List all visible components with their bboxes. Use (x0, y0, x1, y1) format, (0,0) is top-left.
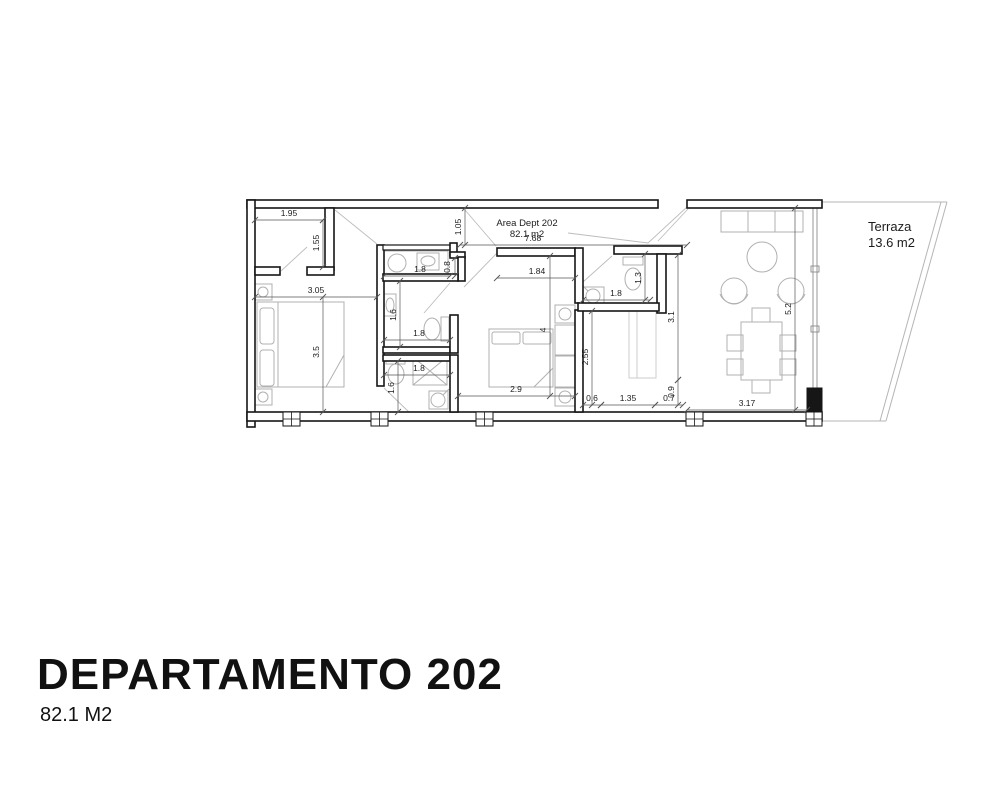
dim-bedroom2-top: 1.84 (529, 266, 546, 276)
left-wall (247, 200, 255, 427)
bath2-sink (431, 393, 445, 407)
living-furniture (720, 211, 805, 393)
dim-bath3-depth: 1.3 (633, 272, 643, 284)
bedroom1-furniture (255, 284, 344, 405)
dim-bedroom1-width: 3.05 (308, 285, 325, 295)
page-title: DEPARTAMENTO 202 (37, 650, 503, 700)
dim-hall-b: 1.35 (620, 393, 637, 403)
bath3-sink (586, 289, 600, 303)
dim-bedroom2-depth: 4 (538, 327, 548, 332)
page-subtitle: 82.1 M2 (40, 704, 112, 727)
bath1-toilet (424, 318, 440, 340)
dim-kitchen-depth: 2.55 (580, 348, 590, 365)
dim-living-width: 3.17 (739, 398, 756, 408)
kitchen-counter (629, 311, 656, 378)
terrace-annotation: Terraza 13.6 m2 (868, 219, 915, 250)
area-annotation: Area Dept 202 82.1 m2 (496, 218, 557, 240)
dim-counter-depth: 0.9 (666, 386, 676, 398)
dim-hall-a: 0.6 (586, 393, 598, 403)
dim-hall-depth: 3.1 (666, 311, 676, 323)
dim-bath2-depth: 1.6 (386, 382, 396, 394)
bedroom2-top-wall (497, 248, 575, 256)
top-wall-right (687, 200, 822, 208)
terrace-label: Terraza (868, 219, 912, 234)
sofa (721, 211, 803, 232)
sliding-door (811, 208, 819, 388)
top-wall-left (247, 200, 658, 208)
bath2-toilet (388, 364, 404, 384)
dim-closet-width: 1.95 (281, 208, 298, 218)
dining-table (741, 322, 782, 380)
dim-bedroom1-depth: 3.5 (311, 346, 321, 358)
round-table (747, 242, 777, 272)
dim-bedroom2-bottom: 2.9 (510, 384, 522, 394)
living-column (807, 388, 822, 412)
dim-bath2-width: 1.8 (413, 363, 425, 373)
bedroom2-furniture (489, 305, 575, 406)
area-value: 82.1 m2 (510, 229, 544, 240)
area-label-leader (568, 207, 687, 243)
dim-bath3-width: 1.8 (610, 288, 622, 298)
area-label: Area Dept 202 (496, 218, 557, 229)
dim-closet-depth: 1.55 (311, 234, 321, 251)
washer (388, 254, 406, 272)
dim-laundry-width: 1.8 (414, 264, 426, 274)
bottom-wall (247, 412, 822, 421)
dim-bath1-width: 1.8 (413, 328, 425, 338)
bath3-top-wall (614, 246, 682, 254)
dim-terrace-depth: 5.2 (783, 303, 793, 315)
dim-bath1-depth: 1.6 (388, 309, 398, 321)
terrace-value: 13.6 m2 (868, 235, 915, 250)
dim-laundry-depth: 0.8 (442, 261, 452, 273)
dim-corridor-width: 1.05 (453, 218, 463, 235)
